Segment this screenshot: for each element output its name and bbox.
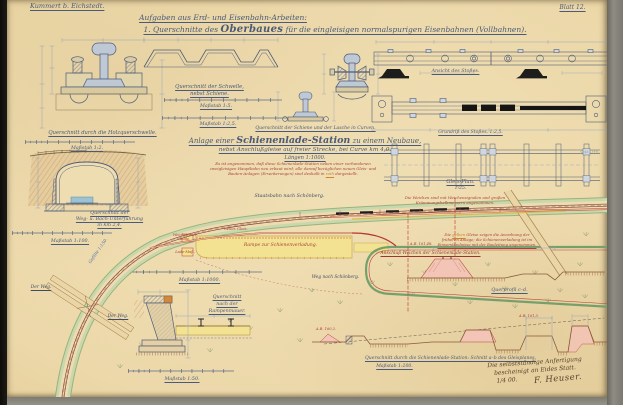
scan-edge-right [607, 0, 623, 405]
fig-rail-chair-section [40, 38, 165, 128]
fig-track-ladder-plan [384, 144, 600, 186]
fig-profile-cd [407, 246, 605, 280]
fig-rail-on-plate [276, 92, 336, 121]
fig-joint-plan-view [372, 96, 606, 132]
fig-joint-cross-section [322, 54, 380, 99]
fig-joint-side-view [374, 40, 608, 78]
engraving-linework [0, 0, 623, 405]
scan-edge-bottom [7, 397, 607, 405]
fig-ramp-wall-detail [134, 290, 252, 359]
fig-iron-sleeper-profile [144, 38, 278, 68]
fig-underpass-section [28, 149, 148, 211]
scanned-drawing-sheet: Kummert b. Eichstedt. Blatt 12. Aufgaben… [0, 0, 623, 405]
scan-edge-left [0, 0, 7, 405]
site-plan [45, 190, 612, 405]
fig-profile-ab [312, 314, 608, 354]
